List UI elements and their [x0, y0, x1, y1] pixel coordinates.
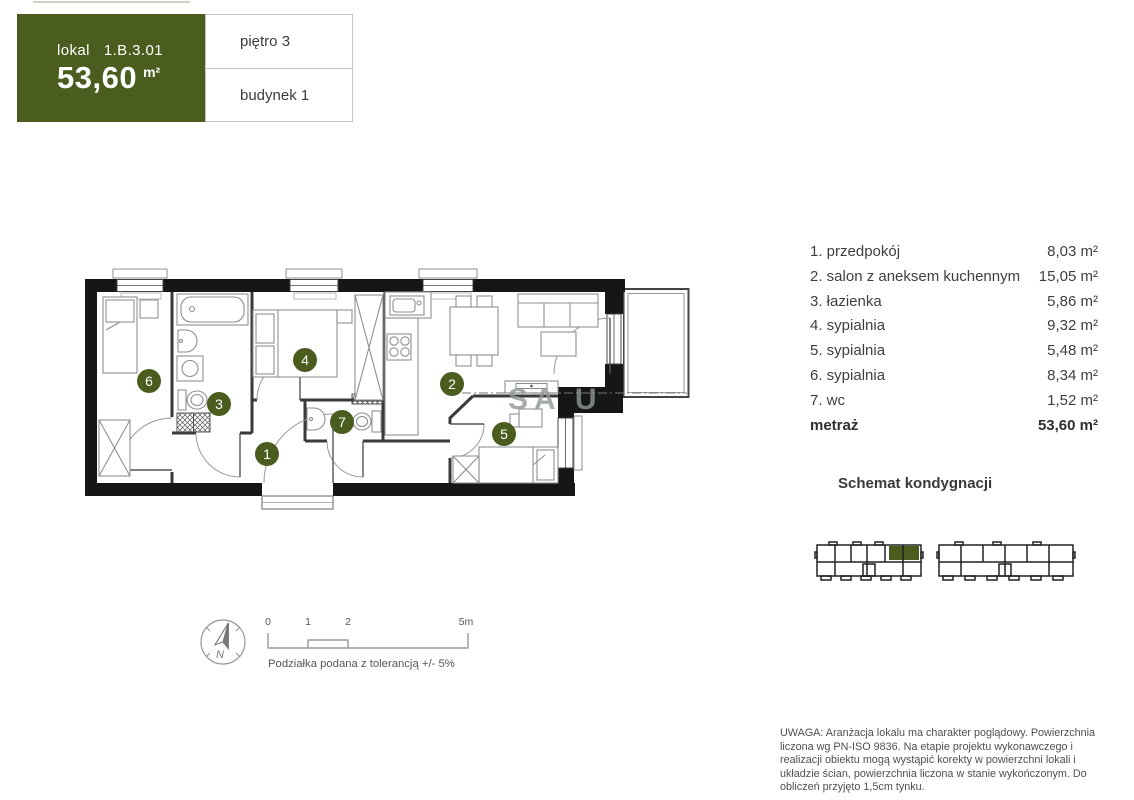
bathtub	[177, 294, 248, 325]
kitchen-counter	[385, 292, 431, 435]
nightstand-room6	[140, 300, 158, 318]
room-label: 1. przedpokój	[810, 240, 900, 265]
room-row: 1. przedpokój 8,03 m²	[810, 240, 1098, 265]
floorplan-page: lokal 1.B.3.01 53,60 m² piętro 3 budynek…	[0, 0, 1134, 800]
stove	[387, 334, 411, 360]
washing-machine	[177, 356, 203, 381]
room-area: 9,32 m²	[1047, 314, 1098, 339]
room-badge-6: 6	[137, 369, 161, 393]
north-label: N	[216, 649, 224, 661]
coffee-table	[541, 332, 576, 356]
washbasin-wc	[307, 408, 325, 430]
room-badge-4: 4	[293, 348, 317, 372]
floor-plan: SA U	[60, 255, 720, 535]
unit-area-line: 53,60 m²	[57, 62, 205, 94]
balcony	[624, 289, 689, 397]
unit-id-line: lokal 1.B.3.01	[57, 42, 205, 59]
bed-room5	[479, 447, 558, 483]
room-area: 8,34 m²	[1047, 364, 1098, 389]
scale-tick-5m: 5m	[459, 616, 474, 628]
room-label: 6. sypialnia	[810, 364, 885, 389]
room-list: 1. przedpokój 8,03 m² 2. salon z aneksem…	[810, 240, 1098, 438]
top-edge-artifact	[33, 1, 190, 3]
north-arrow-icon	[215, 621, 235, 649]
room-label: 2. salon z aneksem kuchennym	[810, 265, 1020, 290]
room-area: 15,05 m²	[1039, 265, 1098, 290]
floor-cell: piętro 3	[206, 15, 352, 68]
room-badge-1: 1	[255, 442, 279, 466]
room-area: 5,86 m²	[1047, 290, 1098, 315]
window-room6	[113, 269, 167, 299]
window-room4	[286, 269, 342, 299]
scale-tick-1: 1	[305, 616, 311, 628]
room-area: 5,48 m²	[1047, 339, 1098, 364]
room-label: 3. łazienka	[810, 290, 882, 315]
building-1-schematic	[815, 542, 923, 588]
total-value: 53,60 m²	[1038, 414, 1098, 439]
entrance-opening	[262, 483, 333, 509]
scale-tick-2: 2	[345, 616, 351, 628]
north-compass: N	[196, 614, 250, 668]
room-badge-2: 2	[440, 372, 464, 396]
dining-table	[450, 296, 498, 366]
scale-caption: Podziałka podana z tolerancją +/- 5%	[268, 658, 455, 670]
balcony-door	[605, 314, 623, 364]
room-row: 5. sypialnia 5,48 m²	[810, 339, 1098, 364]
disclaimer-text: UWAGA: Aranżacja lokalu ma charakter pog…	[780, 727, 1114, 795]
wardrobe-room5	[453, 456, 479, 483]
wardrobe-room6	[99, 420, 130, 476]
scale-bar-line	[268, 633, 468, 648]
wardrobe-room4	[355, 295, 383, 400]
toilet-bathroom	[178, 390, 207, 410]
unit-area-unit: m²	[143, 64, 160, 80]
room-badge-7: 7	[330, 410, 354, 434]
room-row: 6. sypialnia 8,34 m²	[810, 364, 1098, 389]
room-badge-3: 3	[207, 392, 231, 416]
unit-area-value: 53,60	[57, 62, 137, 94]
washbasin-bathroom	[178, 330, 197, 352]
room-row: 4. sypialnia 9,32 m²	[810, 314, 1098, 339]
watermark-text: SA U	[508, 383, 603, 416]
room-row: 3. łazienka 5,86 m²	[810, 290, 1098, 315]
sofa	[518, 294, 598, 327]
building-cell: budynek 1	[206, 68, 352, 121]
room-row: 7. wc 1,52 m²	[810, 389, 1098, 414]
unit-meta-cells: piętro 3 budynek 1	[205, 14, 353, 122]
window-room5	[556, 416, 582, 470]
room-area: 1,52 m²	[1047, 389, 1098, 414]
unit-header-card: lokal 1.B.3.01 53,60 m²	[17, 14, 205, 122]
bed-room6	[103, 297, 137, 373]
toilet-wc	[353, 411, 381, 432]
scale-tick-0: 0	[265, 616, 271, 628]
lokal-value: 1.B.3.01	[104, 42, 163, 59]
room-label: 7. wc	[810, 389, 845, 414]
scale-bar: 0 1 2 5m Podziałka podana z tolerancją +…	[255, 614, 485, 676]
floor-schematic-title: Schemat kondygnacji	[838, 475, 992, 492]
lokal-label: lokal	[57, 42, 90, 59]
room-area: 8,03 m²	[1047, 240, 1098, 265]
room-label: 4. sypialnia	[810, 314, 885, 339]
nightstand-room4	[337, 310, 352, 323]
highlighted-unit	[889, 546, 919, 560]
room-row: 2. salon z aneksem kuchennym 15,05 m²	[810, 265, 1098, 290]
room-badge-5: 5	[492, 422, 516, 446]
room-label: 5. sypialnia	[810, 339, 885, 364]
building-2-schematic	[937, 542, 1075, 588]
total-row: metraż 53,60 m²	[810, 414, 1098, 439]
total-label: metraż	[810, 414, 858, 439]
